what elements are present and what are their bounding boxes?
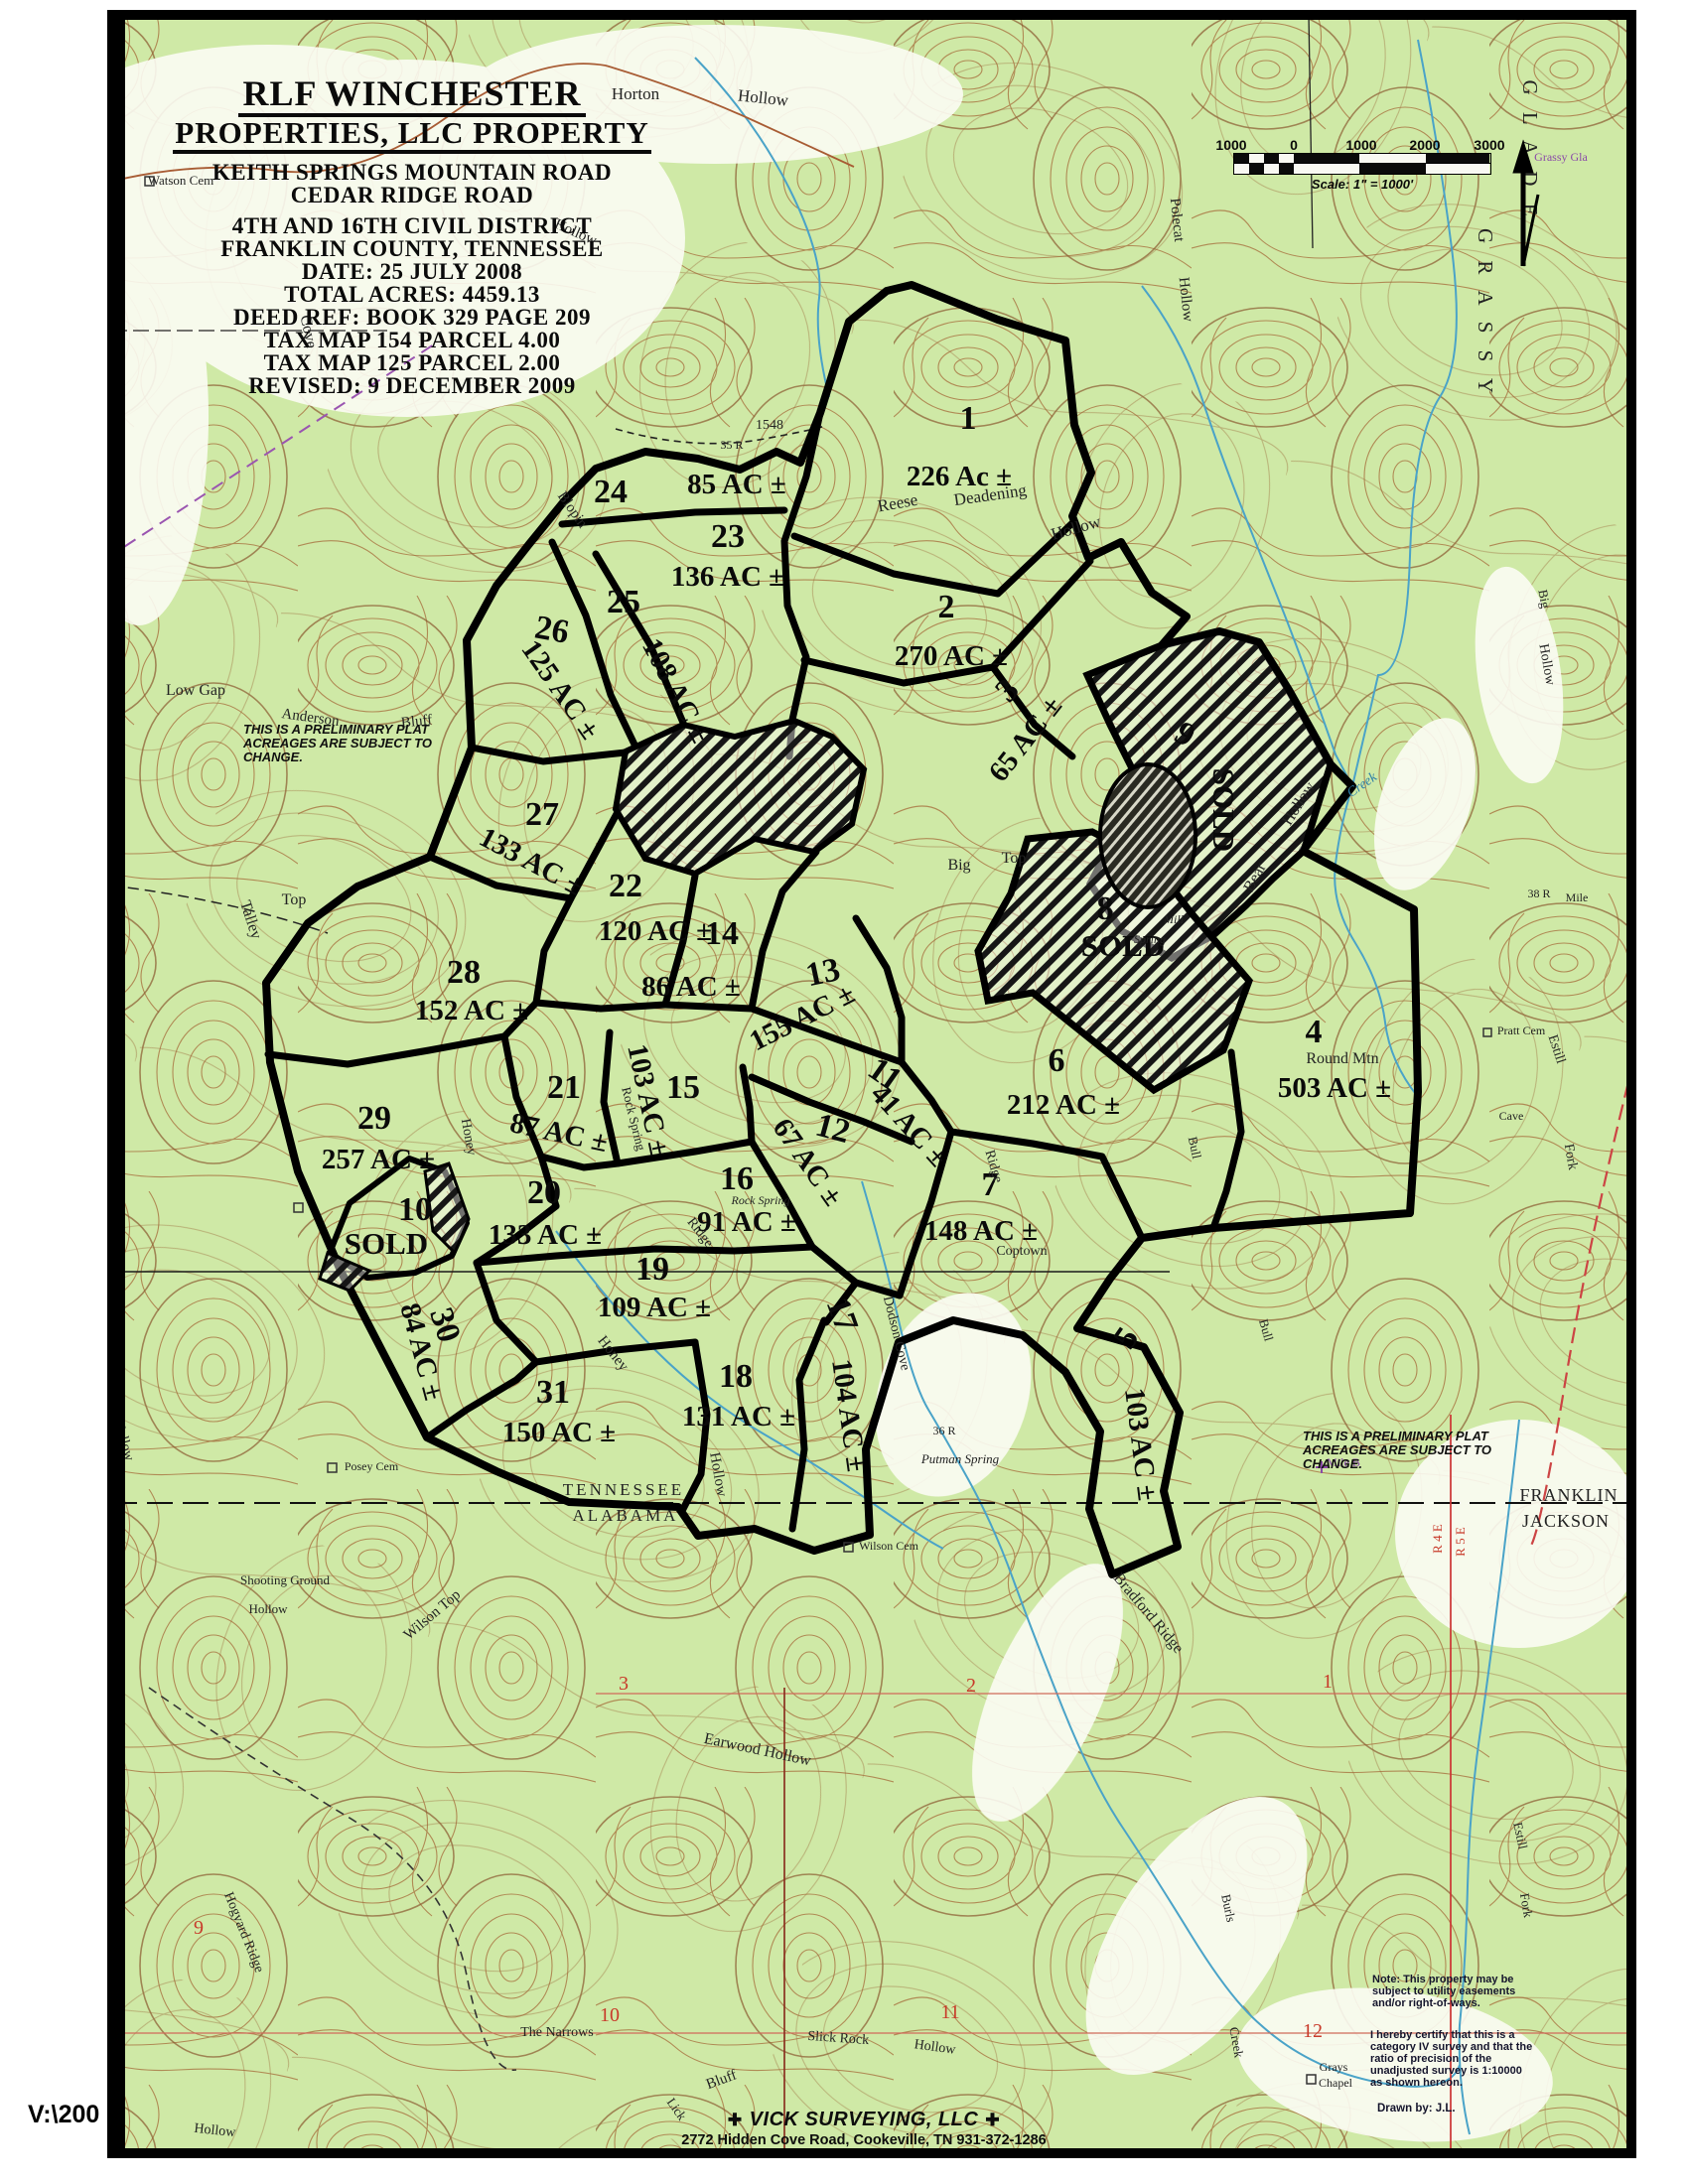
parcel-number-label: 15 (666, 1069, 700, 1106)
parcel-acreage-label: 133 AC ± (489, 1219, 602, 1251)
parcel-number-label: 22 (609, 868, 642, 904)
grid-number-label: 1 (1323, 1671, 1333, 1693)
parcel-acreage-label: 120 AC ± (599, 915, 712, 947)
scale-tick: 3000 (1474, 137, 1504, 153)
title-deed-ref: DEED REF: BOOK 329 PAGE 209 (149, 306, 675, 329)
scale-tick: 1000 (1345, 137, 1376, 153)
parcel-number-label: 28 (447, 954, 481, 991)
place-name-label: ALABAMA (573, 1506, 679, 1525)
place-name-label: Cave (1499, 1109, 1524, 1123)
plat-map-page: 1226 Ac ±2270 AC ±365 AC ±4503 AC ±5103 … (0, 0, 1688, 2184)
parcel-number-label: 10 (398, 1191, 432, 1228)
parcel-number-label: 31 (536, 1374, 570, 1411)
surveyor-block: ✚VICK SURVEYING, LLC✚ 2772 Hidden Cove R… (635, 2109, 1092, 2148)
place-name-label: FRANKLIN (1519, 1485, 1618, 1505)
place-name-label: Rock Spring (731, 1193, 790, 1207)
parcel-number-label: 24 (594, 474, 628, 510)
parcel-acreage-label: 503 AC ± (1278, 1072, 1391, 1104)
scale-bar-ticks: 1000 0 1000 2000 3000 (1218, 137, 1516, 153)
grid-number-label: 3 (619, 1673, 629, 1695)
place-name-label: JACKSON (1522, 1511, 1610, 1531)
parcel-acreage-label: 257 AC ± (322, 1144, 435, 1175)
scale-tick: 2000 (1409, 137, 1440, 153)
surveyor-name-line: ✚VICK SURVEYING, LLC✚ (635, 2109, 1092, 2131)
scale-tick: 0 (1290, 137, 1298, 153)
parcel-acreage-label: 86 AC ± (641, 971, 741, 1003)
place-name-label: Putman Spring (920, 1451, 1000, 1466)
grid-number-label: 11 (940, 2001, 959, 2023)
utility-note: Note: This property may be subject to ut… (1372, 1974, 1551, 2009)
parcel-number-label: 1 (960, 400, 977, 437)
parcel-acreage-label: 91 AC ± (697, 1206, 796, 1238)
parcel-number-label: 25 (607, 584, 640, 620)
grid-number-label: 10 (600, 2004, 620, 2026)
grid-number-label: 2 (966, 1675, 976, 1697)
place-name-label: Spring (1134, 932, 1166, 946)
place-name-label: Wilson Cem (859, 1539, 919, 1553)
place-name-label: 36 R (932, 1424, 955, 1437)
parcel-number-label: 20 (527, 1174, 561, 1211)
title-county: FRANKLIN COUNTY, TENNESSEE (149, 237, 675, 260)
dark-hatch-core (1100, 764, 1196, 907)
place-name-label: Coptown (996, 1244, 1047, 1259)
place-name-label: Grays (1320, 2060, 1348, 2074)
title-tax-map-1: TAX MAP 154 PARCEL 4.00 (149, 329, 675, 351)
title-line-2: PROPERTIES, LLC PROPERTY (149, 113, 675, 153)
parcel-number-label: 2 (938, 589, 955, 625)
title-total-acres: TOTAL ACRES: 4459.13 (149, 283, 675, 306)
title-district: 4TH AND 16TH CIVIL DISTRICT (149, 214, 675, 237)
title-date: DATE: 25 JULY 2008 (149, 260, 675, 283)
parcel-number-label: 4 (1306, 1014, 1323, 1050)
place-name-label: G R A S S Y (1474, 228, 1497, 399)
scale-caption: Scale: 1" = 1000' (1218, 177, 1506, 192)
place-name-label: R 5 E (1453, 1527, 1468, 1557)
parcel-number-label: 8 (1097, 890, 1114, 927)
place-name-label: Low Gap (166, 682, 225, 699)
preliminary-note-right: THIS IS A PRELIMINARY PLAT ACREAGES ARE … (1303, 1430, 1501, 1471)
place-name-label: Big (947, 857, 970, 874)
place-name-label: R 4 E (1430, 1524, 1445, 1554)
prelim-line: ACREAGES ARE SUBJECT TO (243, 737, 442, 751)
parcel-acreage-label: 131 AC ± (682, 1401, 795, 1433)
parcel-acreage-label: 136 AC ± (671, 561, 784, 593)
place-name-label: The Narrows (520, 2025, 593, 2040)
map-frame-left-bar (109, 12, 125, 2156)
place-name-label: 1548 (756, 418, 783, 433)
grid-number-label: 9 (194, 1917, 204, 1939)
parcel-sold-label: SOLD (1206, 768, 1241, 852)
place-name-label: TENNESSEE (563, 1480, 684, 1499)
title-revised: REVISED: 9 DECEMBER 2009 (149, 374, 675, 397)
prelim-line: THIS IS A PRELIMINARY PLAT (1303, 1430, 1501, 1443)
place-name-label: Mill (1163, 912, 1185, 926)
parcel-number-label: 6 (1049, 1042, 1065, 1079)
parcel-number-label: 18 (719, 1358, 753, 1395)
parcel-number-label: 27 (525, 796, 559, 833)
preliminary-note-left: THIS IS A PRELIMINARY PLAT ACREAGES ARE … (243, 723, 442, 764)
place-name-label: Mile (1566, 890, 1589, 904)
title-line-1: RLF WINCHESTER (149, 73, 675, 113)
certification-note: I hereby certify that this is a category… (1370, 2029, 1537, 2089)
title-road-2: CEDAR RIDGE ROAD (149, 184, 675, 206)
scale-bar-row-top (1233, 153, 1491, 164)
parcel-acreage-label: 85 AC ± (687, 469, 786, 500)
surveyor-name: VICK SURVEYING, LLC (750, 2109, 979, 2130)
prelim-line: CHANGE. (1303, 1457, 1501, 1471)
place-name-label: Round Mtn (1306, 1050, 1378, 1067)
scale-bar-row-bottom (1233, 164, 1491, 175)
parcel-acreage-label: 148 AC ± (924, 1215, 1038, 1247)
place-name-label: Hollow (249, 1601, 289, 1616)
drawn-by-note: Drawn by: J.L. (1377, 2103, 1456, 2115)
scale-tick: 1000 (1215, 137, 1246, 153)
place-name-label: Top (282, 891, 307, 908)
place-name-label: Chapel (1319, 2076, 1353, 2090)
parcel-number-label: 16 (720, 1160, 754, 1197)
parcel-acreage-label: 212 AC ± (1007, 1089, 1120, 1121)
title-road-1: KEITH SPRINGS MOUNTAIN ROAD (149, 161, 675, 184)
parcel-acreage-label: 109 AC ± (598, 1292, 711, 1323)
prelim-line: THIS IS A PRELIMINARY PLAT (243, 723, 442, 737)
place-name-label: Top (1002, 850, 1027, 867)
compass-icon: ✚ (728, 2111, 743, 2129)
place-name-label: 38 R (1527, 887, 1550, 900)
file-path-label: V:\200 (28, 2101, 99, 2129)
parcel-sold-label: SOLD (345, 1226, 428, 1261)
place-name-label: Posey Cem (345, 1459, 399, 1473)
parcel-number-label: 29 (357, 1100, 391, 1137)
parcel-acreage-label: 150 AC ± (502, 1417, 616, 1448)
parcel-acreage-label: 152 AC ± (415, 995, 528, 1026)
scale-bar: 1000 0 1000 2000 3000 Scale: 1" = 1000' (1218, 137, 1516, 192)
place-name-label: Pratt Cem (1497, 1024, 1546, 1037)
parcel-number-label: 21 (547, 1069, 581, 1106)
place-name-label: 35 R (720, 438, 743, 452)
parcel-number-label: 19 (635, 1251, 669, 1288)
place-name-label: Shooting Ground (240, 1572, 330, 1587)
prelim-line: CHANGE. (243, 751, 442, 764)
prelim-line: ACREAGES ARE SUBJECT TO (1303, 1443, 1501, 1457)
title-tax-map-2: TAX MAP 125 PARCEL 2.00 (149, 351, 675, 374)
grid-number-label: 12 (1303, 2020, 1323, 2042)
compass-icon: ✚ (985, 2111, 1000, 2129)
parcel-acreage-label: 270 AC ± (895, 640, 1008, 672)
parcel-number-label: 23 (711, 518, 745, 555)
surveyor-address: 2772 Hidden Cove Road, Cookeville, TN 93… (635, 2132, 1092, 2148)
title-block: RLF WINCHESTER PROPERTIES, LLC PROPERTY … (149, 73, 675, 397)
